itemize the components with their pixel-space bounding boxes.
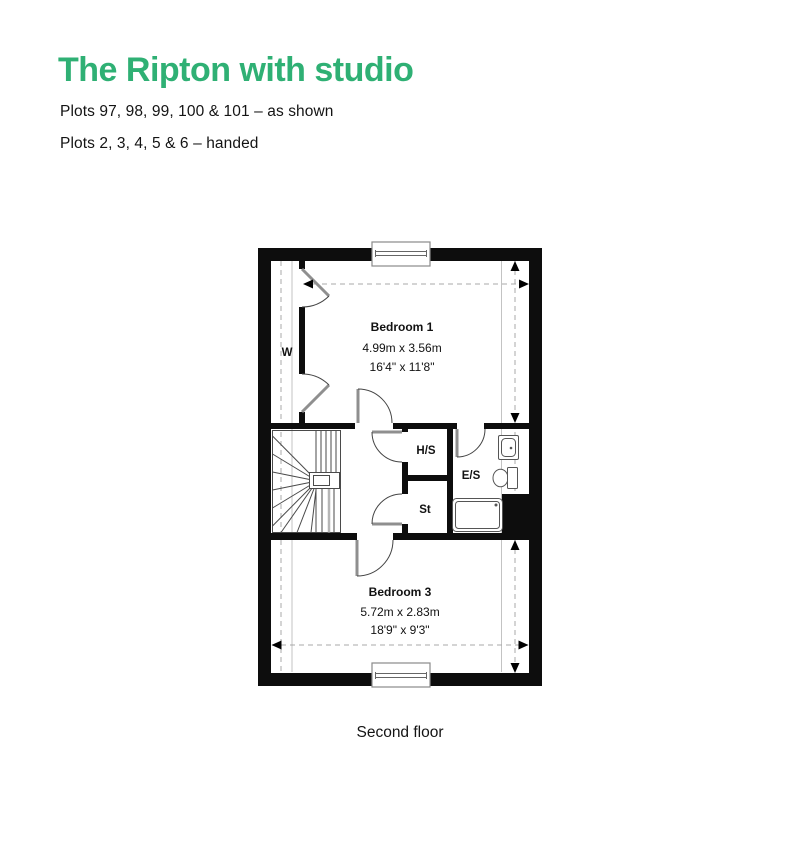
wall	[393, 423, 457, 429]
door-ensuite	[457, 429, 485, 457]
door-bedroom3	[357, 540, 393, 576]
shower-tray	[453, 499, 503, 532]
window-bottom	[372, 663, 430, 687]
store-label: St	[419, 504, 431, 516]
wall	[408, 475, 447, 481]
arrow-left	[272, 641, 282, 650]
staircase	[273, 431, 341, 533]
bedroom3-size-imperial: 18'9" x 9'3"	[370, 623, 429, 637]
arrow-up	[511, 540, 520, 550]
floorplan-drawing: Bedroom 1 4.99m x 3.56m 16'4" x 11'8" Be…	[0, 0, 800, 843]
door-wardrobe-top	[302, 269, 329, 307]
wall	[299, 307, 305, 374]
hs-label: H/S	[416, 445, 436, 457]
door-hs	[372, 432, 402, 462]
toilet	[493, 468, 518, 489]
wall	[299, 412, 305, 423]
door-st	[372, 494, 402, 524]
arrow-up	[511, 261, 520, 271]
arrow-right	[519, 641, 529, 650]
arrow-right	[519, 280, 529, 289]
bedroom1-name: Bedroom 1	[371, 320, 434, 334]
door-wardrobe-bottom	[302, 374, 329, 412]
eaves-infill	[502, 494, 529, 540]
wall	[271, 533, 357, 540]
ensuite-label: E/S	[462, 470, 481, 482]
windows	[372, 242, 430, 687]
wardrobe-label: W	[282, 347, 293, 359]
bedroom1-size-metric: 4.99m x 3.56m	[362, 341, 441, 355]
sink	[499, 436, 519, 460]
bedroom3-name: Bedroom 3	[369, 585, 432, 599]
wall	[402, 462, 408, 494]
bedroom1-size-imperial: 16'4" x 11'8"	[370, 360, 435, 374]
floor-caption: Second floor	[258, 724, 542, 742]
wall	[402, 524, 408, 533]
window-top	[372, 242, 430, 266]
wall	[402, 429, 408, 432]
wall	[484, 423, 529, 429]
wall	[299, 261, 305, 269]
arrow-left	[303, 280, 313, 289]
door-bedroom1	[358, 389, 392, 423]
wall	[271, 423, 355, 429]
bedroom3-size-metric: 5.72m x 2.83m	[360, 605, 439, 619]
arrow-down	[511, 663, 520, 673]
arrow-down	[511, 413, 520, 423]
brochure-page: The Ripton with studio Plots 97, 98, 99,…	[0, 0, 800, 843]
